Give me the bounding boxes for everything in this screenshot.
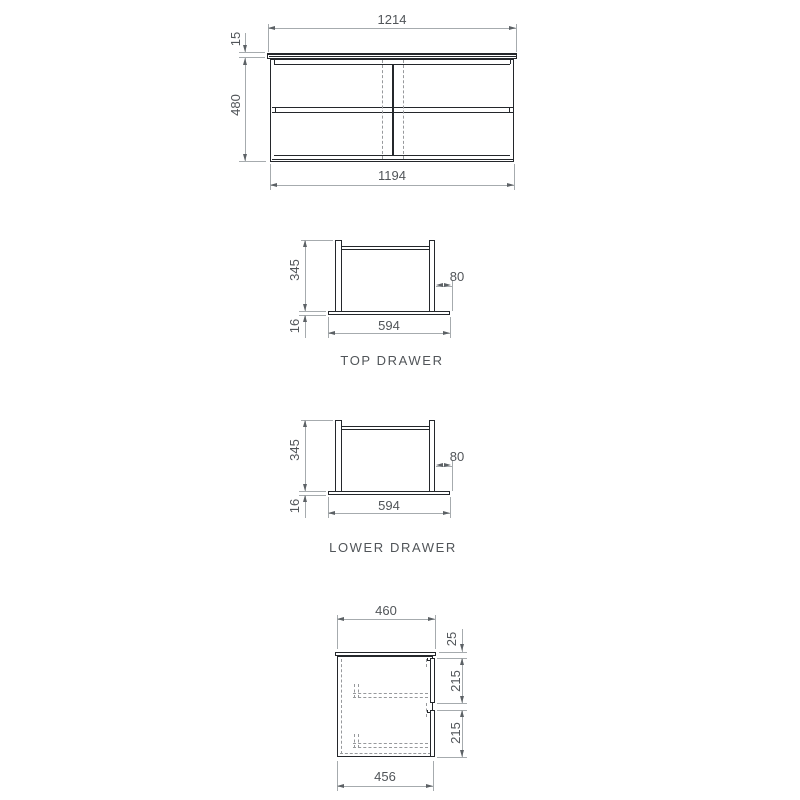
drawer-base-plate — [328, 491, 450, 495]
dim-label-base-thickness: 16 — [287, 481, 303, 531]
dim-label-top-depth: 460 — [346, 603, 426, 619]
extension-line — [435, 615, 436, 649]
carcass-side — [337, 656, 434, 757]
drawer-side-wall-right — [429, 240, 436, 312]
extension-line — [450, 497, 451, 518]
dim-label-upper-front-height: 215 — [448, 656, 464, 706]
dimension-line — [305, 240, 306, 311]
corner-notch — [509, 107, 510, 113]
dimension-line — [245, 58, 246, 161]
plinth-line — [272, 159, 513, 160]
arrowhead-left-icon — [328, 511, 335, 515]
drawer-base-plate — [328, 311, 450, 315]
arrowhead-up-icon — [303, 240, 307, 247]
hidden-edge-dashed-line — [382, 60, 383, 159]
corner-notch — [274, 59, 275, 64]
arrowhead-right-icon — [509, 26, 516, 30]
upper-runner-dashed — [353, 693, 428, 694]
lower-front-hook — [427, 710, 428, 713]
countertop-inner-line — [269, 56, 516, 57]
arrowhead-down-icon — [303, 484, 307, 491]
drawer-side-wall-left — [335, 240, 342, 312]
arrowhead-left-icon — [337, 617, 344, 621]
technical-drawing-canvas: 1214 15 480 1194 — [0, 0, 800, 800]
drawer-rail-line — [342, 249, 429, 250]
center-divider — [392, 64, 394, 155]
dim-label-runner-offset: 80 — [441, 269, 473, 285]
dimension-line — [268, 28, 516, 29]
extension-line — [516, 24, 517, 52]
corner-notch — [510, 59, 511, 64]
dimension-line — [337, 619, 436, 620]
upper-runner-bracket-dashed — [354, 684, 355, 698]
upper-front-hook — [427, 658, 428, 661]
arrowhead-down-icon — [243, 154, 247, 161]
arrowhead-up-icon — [303, 420, 307, 427]
arrowhead-down-icon — [303, 304, 307, 311]
upper-runner-bracket-dashed — [358, 684, 359, 698]
arrowhead-right-icon — [428, 617, 435, 621]
drawer-side-wall-right — [429, 420, 436, 492]
dim-label-drawer-height: 345 — [287, 425, 303, 475]
dim-label-drawer-width: 594 — [349, 498, 429, 514]
extension-line — [299, 491, 326, 492]
dimension-line — [270, 185, 514, 186]
drawer-side-wall-left — [335, 420, 342, 492]
arrowhead-down-icon — [460, 644, 464, 651]
arrowhead-right-icon — [426, 784, 433, 788]
hidden-back-panel-dashed — [341, 659, 342, 754]
extension-line — [437, 703, 467, 704]
extension-line — [437, 757, 467, 758]
arrowhead-up-icon — [303, 495, 307, 502]
extension-line — [239, 161, 266, 162]
drawer-rail-line — [342, 429, 429, 430]
arrowhead-right-icon — [443, 511, 450, 515]
arrowhead-left-icon — [270, 183, 277, 187]
dim-label-top-thickness: 15 — [228, 14, 244, 64]
dim-label-height: 480 — [228, 80, 244, 130]
dimension-line — [337, 786, 434, 787]
top-drawer-caption: TOP DRAWER — [302, 353, 482, 368]
arrowhead-left-icon — [337, 784, 344, 788]
extension-line — [299, 311, 326, 312]
arrowhead-left-icon — [328, 331, 335, 335]
dim-label-top-width: 1214 — [352, 12, 432, 28]
extension-line — [514, 164, 515, 190]
dim-label-base-thickness: 16 — [287, 301, 303, 351]
dim-label-carcass-depth: 456 — [345, 769, 425, 785]
upper-runner-dashed — [353, 697, 428, 698]
upper-drawer-front — [430, 658, 435, 703]
extension-line — [452, 461, 453, 491]
lower-drawer-front — [430, 710, 435, 757]
extension-line — [433, 761, 434, 791]
dimension-line — [305, 420, 306, 491]
lower-runner-bracket-dashed — [358, 734, 359, 748]
drawer-rail-line — [342, 246, 429, 247]
dim-label-lower-front-height: 215 — [448, 708, 464, 758]
extension-line — [452, 281, 453, 311]
hidden-bottom-panel-dashed — [340, 753, 431, 754]
arrowhead-left-icon — [268, 26, 275, 30]
lower-runner-dashed — [353, 743, 428, 744]
arrowhead-up-icon — [303, 315, 307, 322]
arrowhead-right-icon — [507, 183, 514, 187]
lower-drawer-caption: LOWER DRAWER — [303, 540, 483, 555]
dim-label-runner-offset: 80 — [441, 449, 473, 465]
corner-notch — [275, 107, 276, 113]
drawer-rail-line — [342, 426, 429, 427]
dim-label-drawer-height: 345 — [287, 245, 303, 295]
arrowhead-right-icon — [443, 331, 450, 335]
extension-line — [450, 317, 451, 338]
arrowhead-up-icon — [243, 58, 247, 65]
dim-label-drawer-width: 594 — [349, 318, 429, 334]
lower-runner-bracket-dashed — [354, 734, 355, 748]
hidden-edge-dashed-line — [403, 60, 404, 159]
dim-label-carcass-width: 1194 — [352, 168, 432, 184]
lower-runner-dashed — [353, 747, 428, 748]
